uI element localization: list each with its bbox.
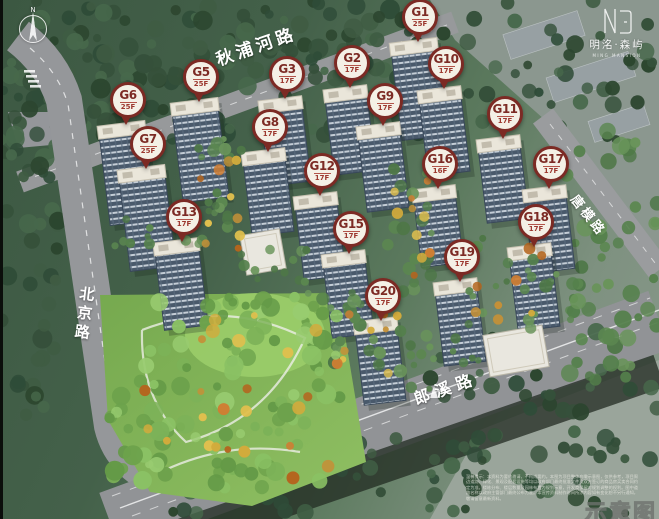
badge-pin-tail-icon: [544, 180, 554, 189]
badge-circle: G1817F: [518, 204, 554, 240]
badge-pin-tail-icon: [455, 273, 465, 282]
badge-floor-count: 25F: [413, 21, 428, 28]
badge-pin-tail-icon: [194, 93, 204, 102]
badge-floor-count: 17F: [177, 221, 192, 228]
compass-circle: [19, 15, 47, 43]
badge-circle: G1717F: [533, 146, 569, 182]
badge-circle: G917F: [367, 83, 403, 119]
badge-floor-count: 25F: [194, 81, 209, 88]
badge-pin-tail-icon: [376, 312, 386, 321]
building-badge-g15: G1517F: [333, 211, 369, 254]
building-badge-g7: G725F: [130, 126, 166, 169]
badge-pin-tail-icon: [121, 116, 131, 125]
badge-building-label: G8: [261, 116, 278, 128]
badge-building-label: G6: [119, 89, 136, 101]
project-logo: 明洺·森屿 MING MANSION: [581, 8, 653, 58]
badge-building-label: G11: [492, 103, 517, 115]
badge-building-label: G2: [343, 52, 360, 64]
building-badge-g6: G625F: [110, 82, 146, 125]
badge-circle: G525F: [183, 59, 219, 95]
badge-building-label: G5: [192, 66, 209, 78]
badge-building-label: G9: [376, 90, 393, 102]
badge-circle: G2017F: [365, 278, 401, 314]
badge-pin-tail-icon: [177, 233, 187, 242]
building-badge-g3: G317F: [269, 56, 305, 99]
building-badge-g16: G1616F: [422, 146, 458, 189]
image-edge: [0, 0, 3, 519]
badge-circle: G1117F: [487, 96, 523, 132]
badge-floor-count: 17F: [529, 226, 544, 233]
badge-circle: G625F: [110, 82, 146, 118]
badge-pin-tail-icon: [315, 187, 325, 196]
badge-floor-count: 25F: [121, 104, 136, 111]
badge-circle: G317F: [269, 56, 305, 92]
badge-pin-tail-icon: [413, 33, 423, 42]
building-badge-g5: G525F: [183, 59, 219, 102]
building-badge-g18: G1817F: [518, 204, 554, 247]
badge-building-label: G10: [433, 53, 458, 65]
badge-floor-count: 17F: [455, 261, 470, 268]
badge-floor-count: 16F: [433, 168, 448, 175]
badge-building-label: G19: [449, 246, 474, 258]
badge-circle: G217F: [334, 45, 370, 81]
building-badge-g12: G1217F: [304, 153, 340, 196]
badge-circle: G125F: [402, 0, 438, 35]
badge-pin-tail-icon: [280, 90, 290, 99]
badge-floor-count: 17F: [498, 118, 513, 125]
badge-pin-tail-icon: [345, 79, 355, 88]
building-badge-g10: G1017F: [428, 46, 464, 89]
building-badge-g19: G1917F: [444, 239, 480, 282]
badge-circle: G817F: [252, 109, 288, 145]
badge-pin-tail-icon: [529, 238, 539, 247]
badge-floor-count: 17F: [345, 67, 360, 74]
badge-circle: G1917F: [444, 239, 480, 275]
badge-floor-count: 17F: [344, 233, 359, 240]
badge-building-label: G18: [523, 211, 548, 223]
building-badge-g2: G217F: [334, 45, 370, 88]
building-badge-g20: G2017F: [365, 278, 401, 321]
badge-circle: G725F: [130, 126, 166, 162]
badge-floor-count: 17F: [378, 105, 393, 112]
badge-building-label: G20: [370, 285, 395, 297]
building-badge-g17: G1717F: [533, 146, 569, 189]
badge-pin-tail-icon: [141, 160, 151, 169]
building-badge-g1: G125F: [402, 0, 438, 42]
watermark-label: 示意图: [585, 495, 657, 519]
badge-floor-count: 17F: [376, 300, 391, 307]
badge-building-label: G15: [338, 218, 363, 230]
badge-pin-tail-icon: [433, 180, 443, 189]
badge-floor-count: 25F: [141, 148, 156, 155]
badge-building-label: G16: [427, 153, 452, 165]
badge-floor-count: 17F: [544, 168, 559, 175]
aerial-site-plan: N 明洺·森屿 MING MANSION 秋浦河路 北京路 郎溪路 唐模路 G1…: [0, 0, 659, 519]
badge-building-label: G13: [171, 206, 196, 218]
site-aerial-render: [0, 0, 659, 519]
badge-pin-tail-icon: [439, 80, 449, 89]
badge-building-label: G12: [309, 160, 334, 172]
badge-building-label: G1: [411, 6, 428, 18]
badge-pin-tail-icon: [378, 117, 388, 126]
badge-floor-count: 17F: [315, 175, 330, 182]
badge-building-label: G7: [139, 133, 156, 145]
badge-circle: G1317F: [166, 199, 202, 235]
badge-circle: G1017F: [428, 46, 464, 82]
building-badge-g11: G1117F: [487, 96, 523, 139]
badge-pin-tail-icon: [344, 245, 354, 254]
badge-building-label: G3: [278, 63, 295, 75]
building-badge-g8: G817F: [252, 109, 288, 152]
badge-pin-tail-icon: [263, 143, 273, 152]
building-badge-g13: G1317F: [166, 199, 202, 242]
logo-name-cn: 明洺·森屿: [581, 37, 653, 52]
badge-circle: G1217F: [304, 153, 340, 189]
badge-floor-count: 17F: [439, 68, 454, 75]
badge-floor-count: 17F: [263, 131, 278, 138]
badge-floor-count: 17F: [280, 78, 295, 85]
compass: N: [17, 6, 49, 50]
compass-needle-icon: [29, 11, 37, 41]
logo-mark-icon: [600, 8, 634, 34]
badge-circle: G1616F: [422, 146, 458, 182]
badge-circle: G1517F: [333, 211, 369, 247]
badge-building-label: G17: [538, 153, 563, 165]
badge-pin-tail-icon: [498, 130, 508, 139]
building-badge-g9: G917F: [367, 83, 403, 126]
logo-name-en: MING MANSION: [581, 53, 653, 58]
